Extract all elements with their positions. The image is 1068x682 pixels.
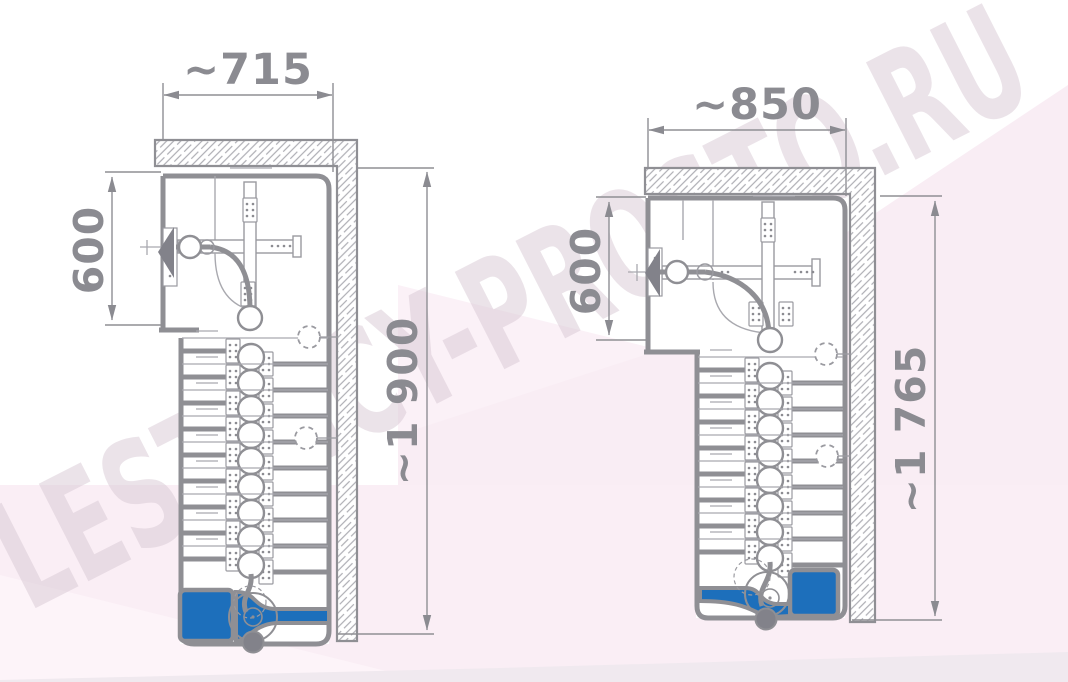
support-pole bbox=[243, 632, 264, 653]
width-dimension-label: ~715 bbox=[183, 45, 313, 95]
dimension-landing-depth bbox=[105, 172, 161, 325]
support-pole bbox=[756, 609, 777, 630]
length-dimension-label: ~1 765 bbox=[887, 345, 935, 514]
landing-depth-label: 600 bbox=[562, 227, 610, 316]
stair-plans-canvas: LESTNICY-PROSTO.RU ~715 600 ~1 900 bbox=[0, 0, 1068, 682]
landing-depth-label: 600 bbox=[65, 206, 113, 295]
first-step-platform bbox=[790, 570, 838, 616]
width-dimension-label: ~850 bbox=[692, 80, 822, 130]
length-dimension-label: ~1 900 bbox=[379, 317, 427, 486]
stair-plans-figure: LESTNICY-PROSTO.RU ~715 600 ~1 900 bbox=[0, 0, 1068, 682]
first-step-platform bbox=[180, 590, 233, 641]
